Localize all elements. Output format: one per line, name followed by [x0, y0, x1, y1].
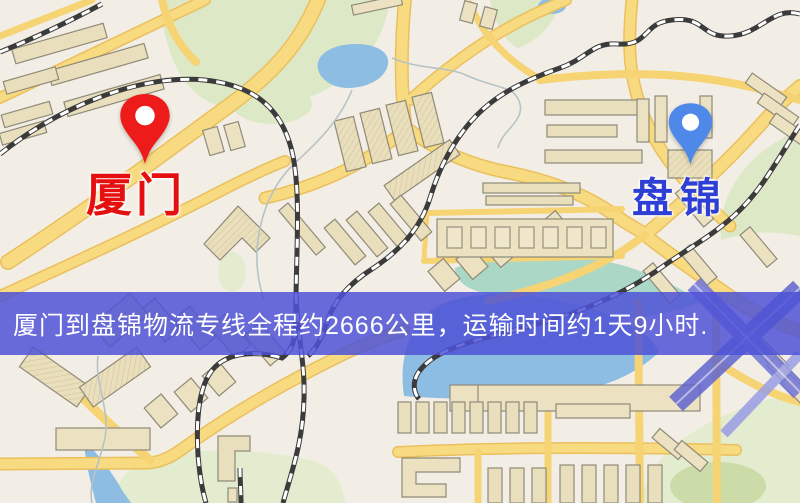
origin-label: 厦门 — [86, 172, 186, 218]
map-canvas[interactable] — [0, 0, 800, 503]
route-info-banner: 厦门到盘锦物流专线全程约2666公里，运输时间约1天9小时. — [0, 292, 800, 355]
origin-pin-icon[interactable] — [118, 94, 172, 164]
destination-pin-body — [669, 103, 712, 164]
logistics-route-map: 厦门 盘锦 厦门到盘锦物流专线全程约2666公里，运输时间约1天9小时. — [0, 0, 800, 503]
origin-pin-body — [120, 94, 169, 164]
destination-label: 盘锦 — [632, 178, 728, 219]
destination-pin-icon[interactable] — [667, 103, 714, 165]
origin-pin-hole — [135, 106, 155, 126]
destination-pin-hole — [682, 114, 699, 131]
route-info-text: 厦门到盘锦物流专线全程约2666公里，运输时间约1天9小时. — [13, 306, 708, 342]
